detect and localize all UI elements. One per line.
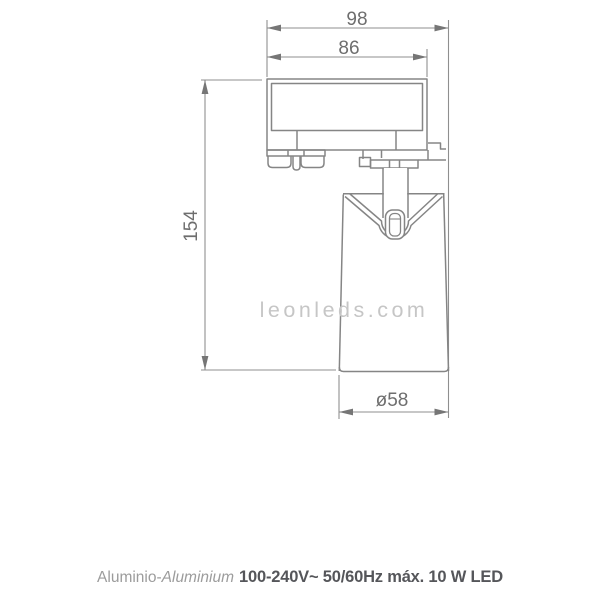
dim-label-86: 86 — [338, 38, 359, 59]
technical-drawing: 98 86 154 ø58 — [0, 0, 600, 470]
certification-badges: 2 WARRANTY GARANTIA IP20 A — [0, 500, 600, 560]
dim-label-154: 154 — [181, 210, 202, 242]
watermark: leonleds.com — [260, 298, 429, 322]
dimension-height — [201, 80, 336, 370]
caption: Aluminio-Aluminium100-240V~ 50/60Hz máx.… — [0, 568, 600, 587]
dim-label-diameter: ø58 — [376, 390, 409, 411]
material-english: Aluminium — [162, 569, 234, 586]
dim-label-98: 98 — [346, 9, 367, 30]
electrical-specs: 100-240V~ 50/60Hz máx. 10 W LED — [239, 568, 503, 586]
stem-and-pivot — [383, 168, 408, 239]
material-spanish: Aluminio- — [97, 569, 162, 586]
track-adapter-outline — [267, 79, 446, 170]
product-technical-sheet: 98 86 154 ø58 — [0, 0, 600, 600]
